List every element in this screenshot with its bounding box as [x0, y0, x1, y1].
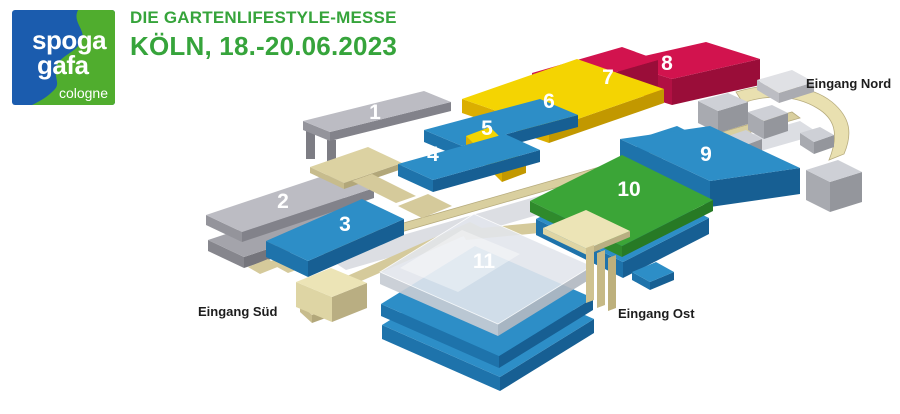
hall-9-label: 9: [700, 143, 712, 166]
spoga-gafa-logo: spoga gafa cologne: [12, 10, 115, 105]
hall-2-label: 2: [277, 190, 289, 213]
hall-map: 1234567891011Eingang NordEingang SüdEing…: [0, 0, 900, 414]
hall-5-label: 5: [481, 117, 493, 140]
logo-text-cologne: cologne: [59, 86, 108, 100]
hall-11-label: 11: [473, 250, 496, 273]
hall-6-label: 6: [543, 90, 555, 113]
hall-4-label: 4: [427, 143, 439, 166]
entrance-label-ost: Eingang Ost: [618, 306, 695, 321]
entrance-label-sued: Eingang Süd: [198, 304, 278, 319]
east-cube: [806, 160, 862, 212]
fair-subtitle: DIE GARTENLIFESTYLE-MESSE: [130, 8, 397, 28]
hall-10-label: 10: [617, 178, 640, 201]
hall-1-label: 1: [369, 101, 381, 124]
east-column-a: [586, 245, 594, 303]
fair-title-date: KÖLN, 18.-20.06.2023: [130, 31, 397, 62]
hall-8-label: 8: [661, 52, 673, 75]
east-column-b: [597, 250, 605, 308]
hall-7-label: 7: [602, 66, 614, 89]
entrance-label-nord: Eingang Nord: [806, 76, 891, 91]
hall-3-label: 3: [339, 213, 351, 236]
fairground-map-banner: 1234567891011Eingang NordEingang SüdEing…: [0, 0, 900, 414]
logo-text-gafa: gafa: [37, 52, 88, 78]
east-column-c: [608, 255, 616, 311]
